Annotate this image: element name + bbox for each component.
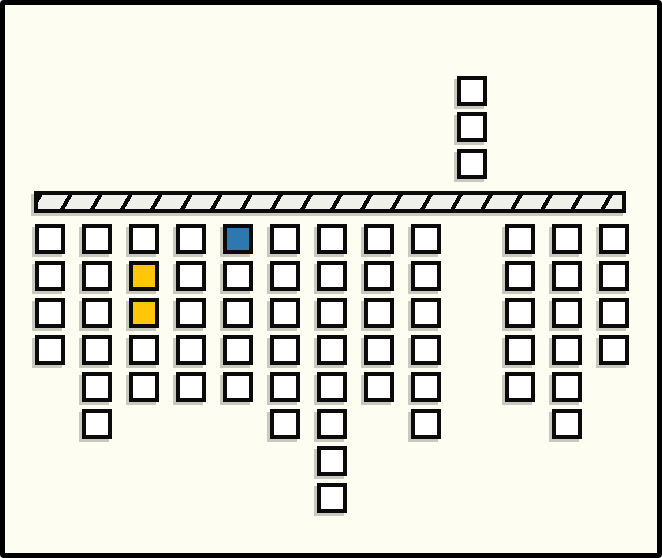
block	[411, 409, 441, 439]
block	[270, 409, 300, 439]
block	[223, 261, 253, 291]
block	[35, 335, 65, 365]
block	[552, 335, 582, 365]
block	[82, 335, 112, 365]
block	[599, 261, 629, 291]
block	[552, 298, 582, 328]
block	[176, 335, 206, 365]
block	[364, 335, 394, 365]
block	[457, 112, 487, 142]
block	[364, 372, 394, 402]
block	[317, 335, 347, 365]
block	[270, 372, 300, 402]
block	[270, 224, 300, 254]
block	[270, 298, 300, 328]
block	[176, 261, 206, 291]
block	[82, 409, 112, 439]
block	[505, 298, 535, 328]
block	[35, 224, 65, 254]
block	[176, 372, 206, 402]
block	[317, 483, 347, 513]
block	[552, 372, 582, 402]
block	[364, 224, 394, 254]
block	[505, 335, 535, 365]
block	[364, 261, 394, 291]
block	[364, 298, 394, 328]
block-yellow	[129, 298, 159, 328]
block	[129, 224, 159, 254]
block	[505, 372, 535, 402]
block	[552, 261, 582, 291]
block-blue	[223, 224, 253, 254]
block	[599, 224, 629, 254]
block	[35, 298, 65, 328]
block	[176, 224, 206, 254]
block	[505, 261, 535, 291]
block	[411, 261, 441, 291]
block	[599, 298, 629, 328]
block	[317, 224, 347, 254]
block-yellow	[129, 261, 159, 291]
block	[411, 298, 441, 328]
block	[457, 149, 487, 179]
block	[317, 409, 347, 439]
block	[223, 372, 253, 402]
block	[82, 224, 112, 254]
block	[82, 298, 112, 328]
block	[270, 335, 300, 365]
block	[317, 298, 347, 328]
block	[552, 409, 582, 439]
block	[411, 372, 441, 402]
block	[82, 372, 112, 402]
block	[317, 446, 347, 476]
block	[223, 298, 253, 328]
hatched-support-bar	[34, 191, 626, 213]
block	[129, 372, 159, 402]
block	[223, 335, 253, 365]
block	[317, 372, 347, 402]
block	[317, 261, 347, 291]
block	[176, 298, 206, 328]
block	[129, 335, 159, 365]
scene-frame	[0, 0, 662, 558]
block	[35, 261, 65, 291]
block	[599, 335, 629, 365]
block	[457, 76, 487, 106]
block	[82, 261, 112, 291]
block	[411, 224, 441, 254]
block	[411, 335, 441, 365]
block	[552, 224, 582, 254]
block	[505, 224, 535, 254]
block	[270, 261, 300, 291]
